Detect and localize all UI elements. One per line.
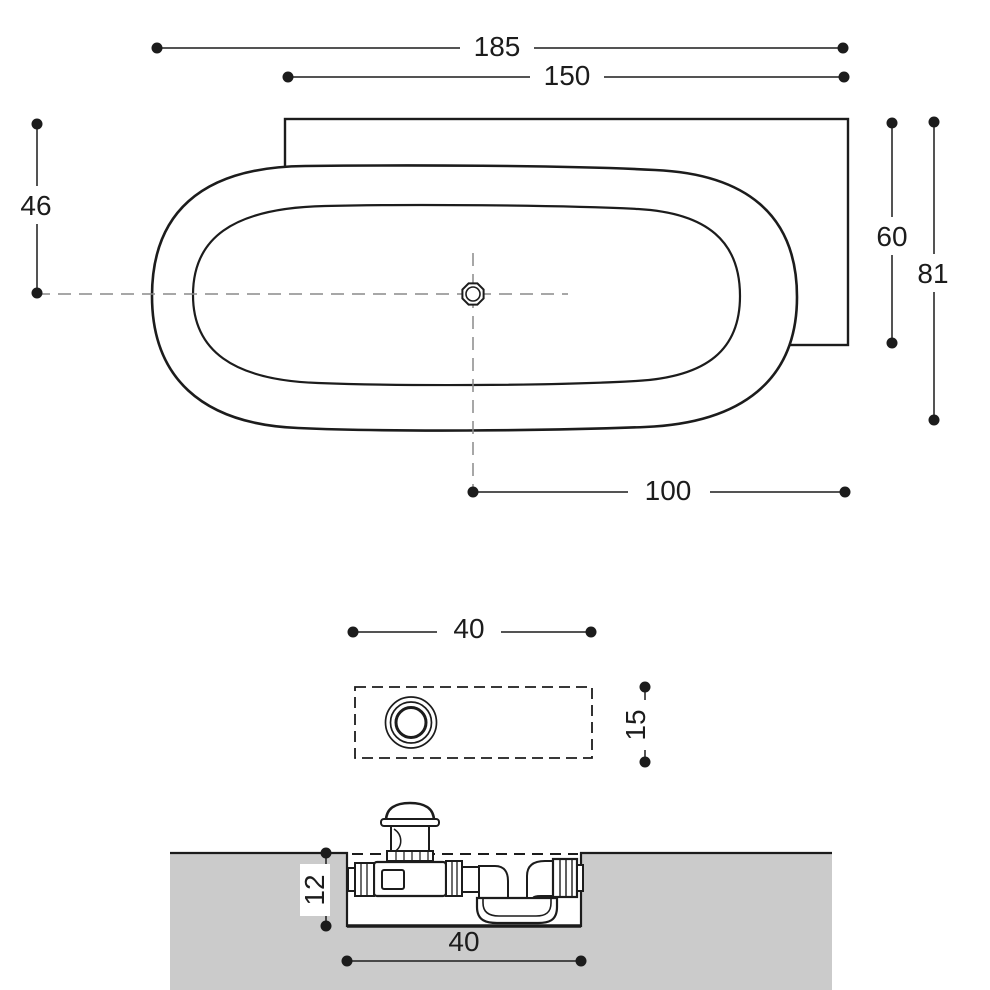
dim-endpoint-dot xyxy=(576,956,587,967)
dim-label-150: 150 xyxy=(544,60,591,91)
dim-endpoint-dot xyxy=(839,72,850,83)
drawing-root: 185 150 46 xyxy=(12,30,958,990)
dim-overall-depth: 81 xyxy=(910,117,958,426)
dim-label-40: 40 xyxy=(453,613,484,644)
dim-endpoint-dot xyxy=(838,43,849,54)
dim-label-15: 15 xyxy=(620,709,651,740)
drain-flange-circles xyxy=(386,697,437,748)
dim-label-81: 81 xyxy=(917,258,948,289)
dim-endpoint-dot xyxy=(640,682,651,693)
drain-fitting-plan xyxy=(462,283,483,304)
dim-endpoint-dot xyxy=(640,757,651,768)
bathtub-installation-drawing: 185 150 46 xyxy=(0,0,990,990)
tee-outlet-nut xyxy=(446,861,462,896)
dim-deck-length: 150 xyxy=(283,59,850,93)
dim-endpoint-dot xyxy=(152,43,163,54)
dim-overall-length: 185 xyxy=(152,30,849,64)
drain-inner-circle xyxy=(396,708,426,738)
waste-trap-assembly xyxy=(348,803,583,923)
left-compression-nut xyxy=(355,863,374,896)
trap-bowl xyxy=(477,898,557,923)
left-pipe-stub xyxy=(348,868,355,891)
dim-endpoint-dot xyxy=(840,487,851,498)
drain-flange-ribbed xyxy=(387,851,433,861)
dim-endpoint-dot xyxy=(321,921,332,932)
dim-endpoint-dot xyxy=(929,117,940,128)
dim-endpoint-dot xyxy=(586,627,597,638)
floor-section-view: 12 40 xyxy=(170,803,832,990)
dim-endpoint-dot xyxy=(32,119,43,130)
popup-cap-rim xyxy=(381,819,439,826)
waste-tee-body xyxy=(374,862,446,896)
dim-recess-length: 40 xyxy=(348,611,597,647)
technical-drawing-sheet: 185 150 46 xyxy=(0,0,990,990)
drain-recess-detail-view: 40 15 xyxy=(348,611,653,768)
dim-center-offset: 46 xyxy=(12,119,60,299)
dim-endpoint-dot xyxy=(929,415,940,426)
dim-endpoint-dot xyxy=(887,338,898,349)
plan-view: 185 150 46 xyxy=(12,30,958,508)
dim-label-100: 100 xyxy=(645,475,692,506)
waste-pipe-segment xyxy=(462,867,479,892)
right-pipe-stub xyxy=(577,865,583,891)
elbow-down xyxy=(479,866,508,898)
dim-endpoint-dot xyxy=(348,627,359,638)
dim-drain-to-edge: 100 xyxy=(468,474,851,508)
dim-endpoint-dot xyxy=(32,288,43,299)
dim-endpoint-dot xyxy=(342,956,353,967)
dim-endpoint-dot xyxy=(468,487,479,498)
dim-endpoint-dot xyxy=(283,72,294,83)
dim-recess-width: 15 xyxy=(620,682,652,768)
dim-label-12: 12 xyxy=(299,874,330,905)
dim-endpoint-dot xyxy=(321,848,332,859)
dim-label-60: 60 xyxy=(876,221,907,252)
dim-label-185: 185 xyxy=(474,31,521,62)
dim-endpoint-dot xyxy=(887,118,898,129)
drain-neck-cylinder xyxy=(391,826,429,853)
dim-label-40-section: 40 xyxy=(448,926,479,957)
riser-elbow xyxy=(527,861,553,898)
drain-outer-circle xyxy=(386,697,437,748)
dim-deck-depth: 60 xyxy=(868,118,916,349)
right-compression-nut xyxy=(553,859,577,897)
dim-label-46: 46 xyxy=(20,190,51,221)
